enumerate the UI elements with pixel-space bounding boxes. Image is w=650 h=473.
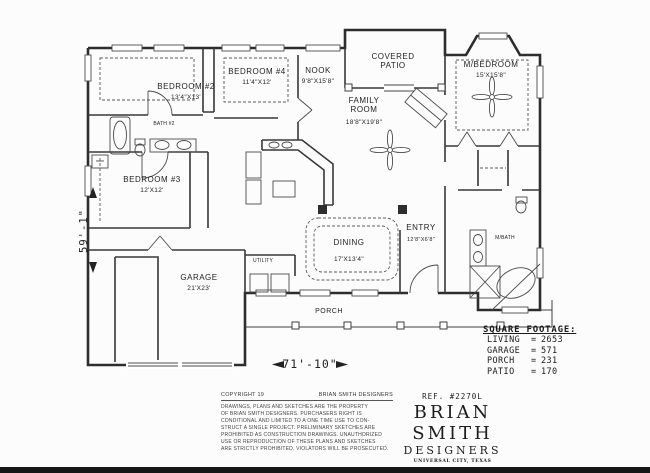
kitchen-pantry [246,152,261,178]
room-label-entry: ENTRY [406,223,435,232]
columns [318,205,407,214]
sqft-row-porch: PORCH=231 [483,356,609,367]
designer-subtitle: DESIGNERS [370,444,535,457]
dimension-height: 59'-1" [78,209,90,253]
doors [142,85,518,293]
room-label-dining: DINING [334,238,365,247]
kitchen-sink [269,142,279,148]
designer-name: BRIAN SMITH [370,402,535,444]
dryer [271,274,289,292]
scan-edge-bar [0,467,650,473]
copyright-prefix: COPYRIGHT 19 [221,392,264,398]
room-label-utility: UTILITY [253,259,273,265]
room-size-bedroom3: 12'X12' [140,187,163,194]
copyright-text: DRAWINGS, PLANS AND SKETCHES ARE THE PRO… [221,404,393,454]
room-size-bedroom2: 13'4"X13' [171,94,201,101]
washer [250,274,268,292]
copyright-block: COPYRIGHT 19 BRIAN SMITH DESIGNERS DRAWI… [221,392,393,453]
detail-marker-box [92,155,108,168]
sqft-value: 231 [541,356,558,366]
sqft-row-patio: PATIO=170 [483,367,609,378]
master-bedroom-fan [472,77,512,117]
mbath-vanity [470,230,486,266]
sqft-label: PATIO [487,367,531,378]
room-label-m-bath: M/BATH [495,236,515,242]
dimension-arrows [89,187,348,368]
sqft-row-garage: GARAGE=571 [483,346,609,357]
room-size-dining: 17'X13'4" [334,256,364,263]
designer-location: UNIVERSAL CITY, TEXAS [370,459,535,464]
designer-title-block: REF. #2270L BRIAN SMITH DESIGNERS UNIVER… [370,392,535,473]
copyright-header: COPYRIGHT 19 BRIAN SMITH DESIGNERS [221,392,393,401]
room-size-entry: 12'8"X6'8" [407,237,435,243]
family-room-fan [370,130,410,170]
room-label-porch: PORCH [315,308,343,316]
room-label-bedroom2: BEDROOM #2 [157,82,214,91]
plan-reference-number: REF. #2270L [370,392,535,401]
floor-plan-sheet: BEDROOM #2 13'4"X13' BEDROOM #4 11'4"X12… [0,0,650,473]
room-label-garage: GARAGE [180,273,217,282]
room-size-bedroom4: 11'4"X12' [242,79,271,86]
room-label-nook: NOOK [305,66,331,75]
sqft-row-living: LIVING=2653 [483,335,609,346]
room-label-bath2: BATH #2 [153,122,174,128]
sqft-value: 170 [541,367,558,377]
sqft-label: PORCH [487,356,531,367]
square-footage-table: SQUARE FOOTAGE: LIVING=2653 GARAGE=571 P… [483,325,609,377]
room-size-m-bedroom: 15'X15'8" [476,72,506,79]
dimension-width: 71'-10" [282,357,337,371]
garage-door [126,360,234,369]
bath2-vanity [150,139,196,152]
sqft-value: 2653 [541,335,563,345]
kitchen-island [273,181,295,197]
room-size-family-room: 18'8"X19'8" [346,119,382,126]
square-footage-title: SQUARE FOOTAGE: [483,325,609,335]
room-label-bedroom3: BEDROOM #3 [123,175,180,184]
room-label-covered-patio: COVERED PATIO [366,52,420,70]
room-label-m-bedroom: M/BEDROOM [464,60,519,69]
room-size-garage: 21'X23' [187,285,210,292]
interior-walls [88,48,540,362]
sqft-value: 571 [541,346,558,356]
fireplace [405,88,447,128]
sqft-label: LIVING [487,335,531,346]
room-label-family-room: FAMILY ROOM [337,96,391,114]
ceiling-dashed-lines [100,58,528,280]
room-size-nook: 9'8"X15'8" [302,78,335,85]
sqft-label: GARAGE [487,346,531,357]
bath2-tub [110,117,130,154]
room-label-bedroom4: BEDROOM #4 [228,67,285,76]
